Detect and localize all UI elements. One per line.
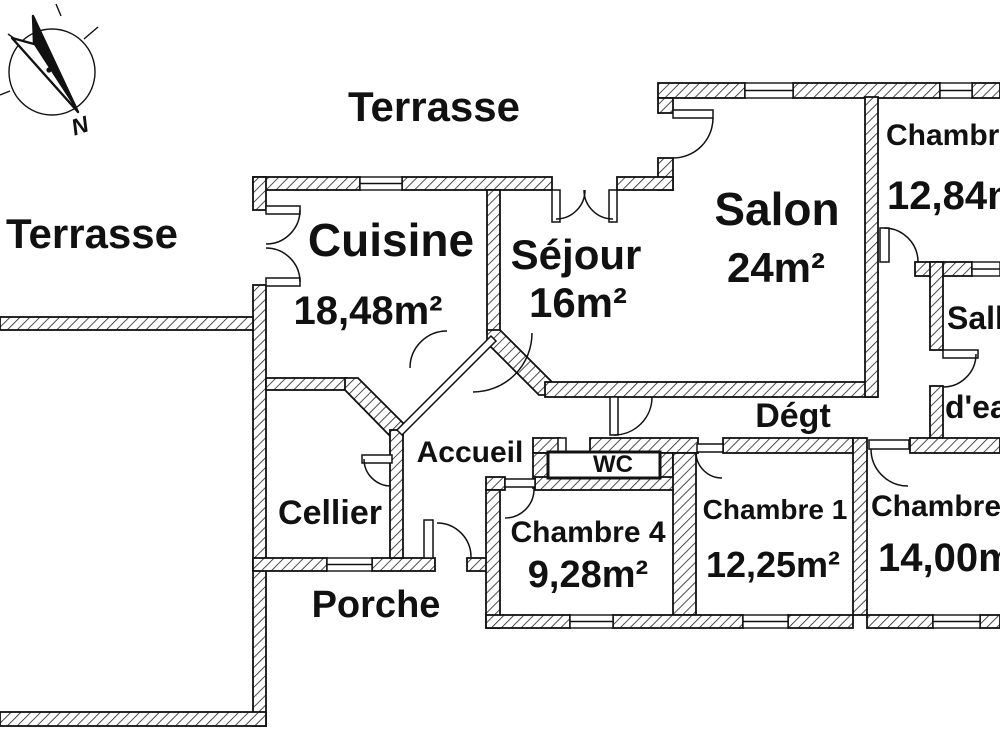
label-chambre1-name: Chambre 1	[703, 496, 848, 524]
walls-layer	[0, 83, 1000, 726]
window	[940, 83, 972, 98]
label-cuisine-name: Cuisine	[308, 217, 474, 263]
door-chambre-sud	[869, 440, 909, 486]
window	[570, 615, 613, 628]
label-cellier: Cellier	[278, 496, 382, 530]
compass-icon	[0, 4, 98, 115]
door-chambre1	[696, 444, 723, 478]
label-sejour-name: Séjour	[511, 234, 642, 276]
floor-plan: Terrasse Terrasse Cuisine 18,48m² Séjour…	[0, 0, 1000, 750]
label-terrasse-left: Terrasse	[6, 213, 178, 255]
door-chambre-nord	[880, 228, 918, 262]
window	[972, 262, 1000, 276]
label-cuisine-area: 18,48m²	[294, 291, 443, 331]
label-accueil: Accueil	[417, 438, 524, 468]
label-chambre1-area: 12,25m²	[706, 547, 840, 583]
door-salle-eau	[943, 350, 978, 387]
label-porche: Porche	[312, 586, 441, 624]
label-chambre4-area: 9,28m²	[528, 556, 648, 594]
label-wc: WC	[593, 453, 633, 477]
door-degagement	[610, 397, 652, 435]
label-salon-name: Salon	[714, 186, 839, 232]
window	[745, 83, 793, 98]
door-cuisine-terrasse	[266, 206, 300, 286]
window	[360, 177, 402, 190]
label-chambre-nord-name: Chambre	[886, 121, 1000, 151]
label-chambre-sud-area: 14,00m²	[878, 538, 1000, 578]
window	[743, 615, 788, 628]
label-sejour-area: 16m²	[529, 282, 627, 324]
label-chambre-nord-area: 12,84m²	[887, 176, 1000, 216]
label-degagement: Dégt	[755, 399, 831, 433]
label-chambre-sud-name: Chambre	[871, 492, 1000, 522]
door-salon-terrasse	[673, 110, 713, 158]
label-salle-eau-line1: Salle	[947, 302, 1000, 334]
label-salon-area: 24m²	[727, 247, 825, 289]
label-chambre4-name: Chambre 4	[510, 518, 665, 548]
door-cellier	[362, 455, 392, 486]
label-salle-eau-line2: d'eau	[945, 391, 1000, 423]
window	[933, 615, 980, 628]
label-terrasse-top: Terrasse	[348, 86, 520, 128]
door-chambre4	[505, 479, 535, 518]
door-entree	[424, 520, 471, 558]
window	[327, 558, 372, 571]
door-sejour-terrasse	[552, 190, 617, 222]
